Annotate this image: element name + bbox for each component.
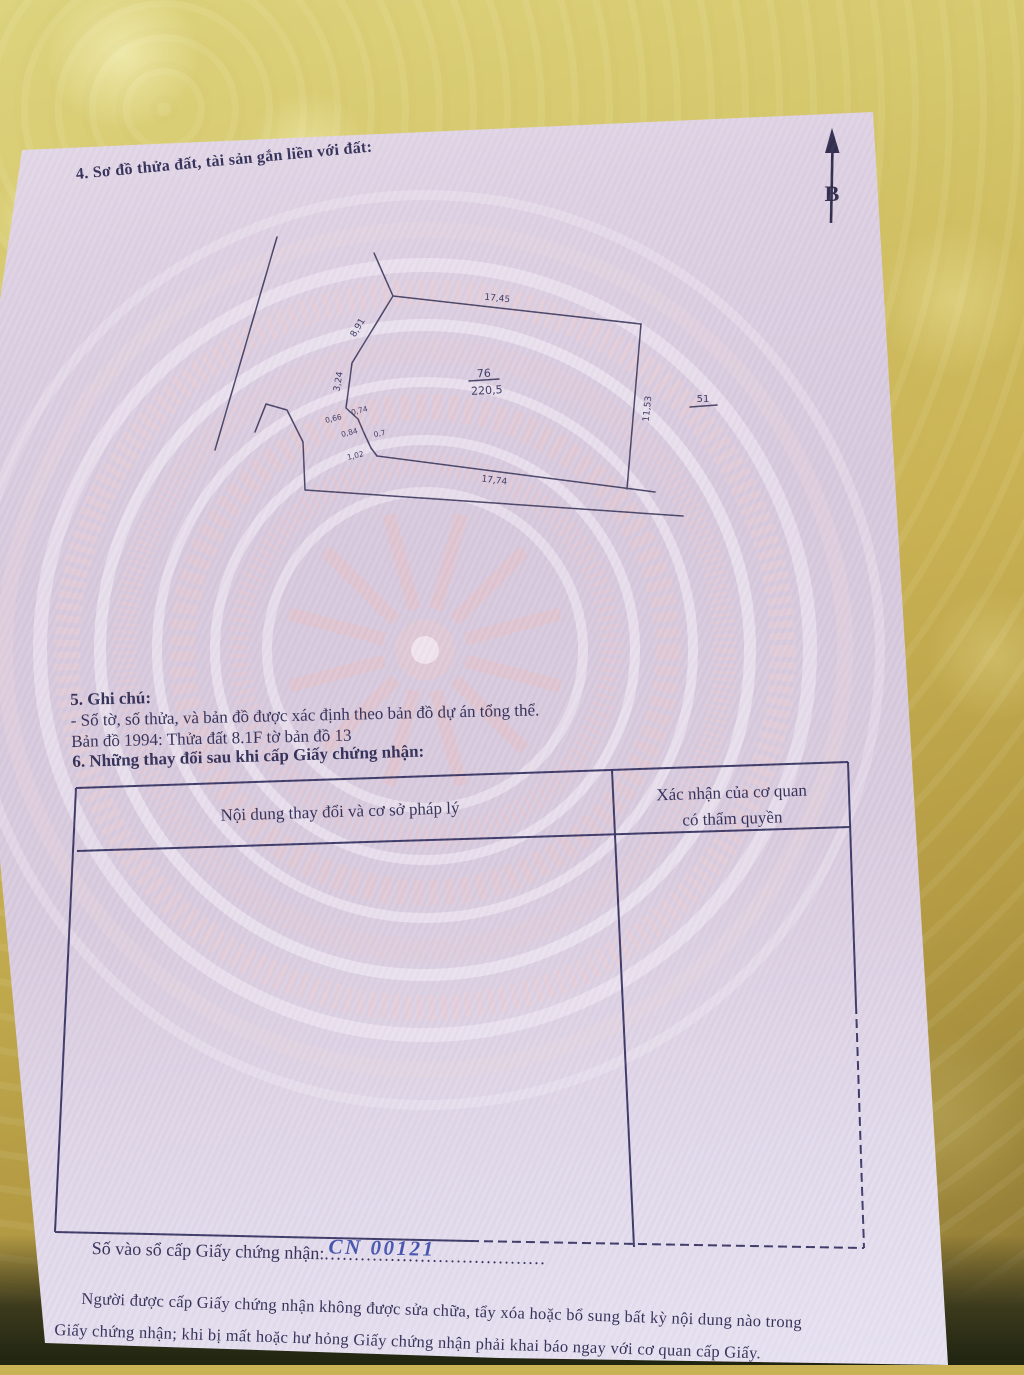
table-col2-header: Xác nhận của cơ quan có thẩm quyền xyxy=(624,777,840,836)
section5-notes: 5. Ghi chú: - Số tờ, số thửa, và bản đồ … xyxy=(70,678,540,752)
adjacent-parcel-number: 51 xyxy=(697,394,710,405)
parcel-number: 76 xyxy=(476,367,491,381)
dong-son-drum-watermark xyxy=(0,195,880,1105)
parcel-area: 220,5 xyxy=(471,383,503,398)
dim-small-4: 0,7 xyxy=(373,428,387,439)
dim-top: 17,45 xyxy=(484,293,511,306)
north-label: B xyxy=(825,181,840,206)
dim-bottom: 17,74 xyxy=(481,474,508,487)
table-border-right-lower xyxy=(856,1005,864,1248)
registry-handwritten-number: CN 00121 xyxy=(328,1234,435,1261)
certificate-page: 17,45 8,91 3,24 0,66 0,74 0,84 0,7 1,02 … xyxy=(0,0,1024,1365)
north-arrow-icon: B xyxy=(825,128,840,223)
dim-left: 3,24 xyxy=(332,371,345,393)
registry-label: Số vào sổ cấp Giấy chứng nhận: xyxy=(92,1238,325,1263)
